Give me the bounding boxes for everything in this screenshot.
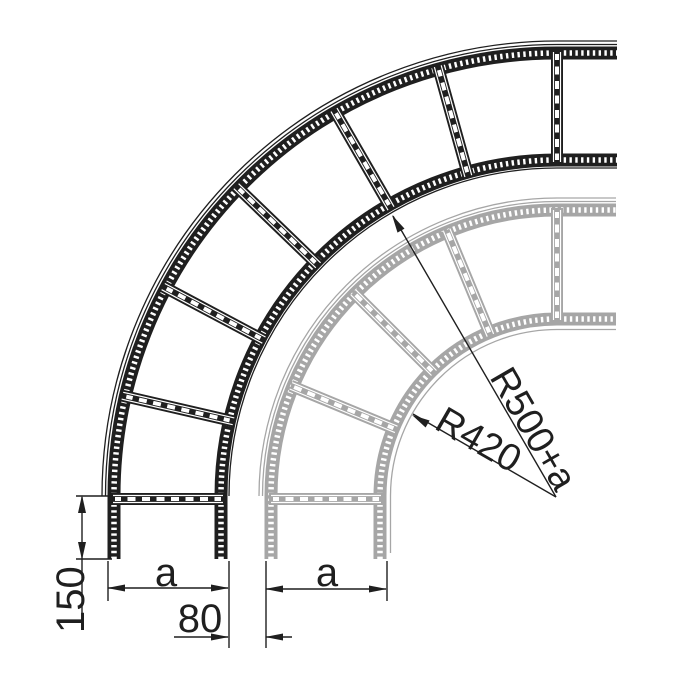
dim-label-80: 80 (178, 597, 223, 641)
black-rung-arc (162, 284, 266, 344)
gray-rung-arc (290, 383, 398, 433)
arrowhead-right (211, 585, 229, 592)
arrowhead-left (107, 585, 125, 592)
dimensions: 150 a 80 a (49, 215, 585, 648)
black-rung-arc (331, 108, 394, 210)
gray-rung-arc (444, 229, 494, 337)
gray-rung-bottom (269, 496, 383, 503)
gray-rung-end (554, 208, 561, 322)
black-rung-end (554, 50, 561, 164)
dim-label-width-black: a (155, 551, 178, 595)
arrowhead-down (78, 542, 86, 560)
arrowhead-left (265, 634, 283, 641)
arrowhead-radius-large (392, 215, 405, 233)
ladder-bend-diagram: 150 a 80 a (0, 0, 691, 683)
dim-label-width-gray: a (316, 551, 339, 595)
black-rung-arc (234, 184, 321, 268)
black-rung-bottom (111, 496, 225, 503)
gray-rung-arc (351, 290, 437, 376)
dimension-150: 150 (49, 495, 112, 633)
arrowhead-radius-small (412, 415, 430, 428)
black-rung-arc (434, 65, 471, 177)
dimension-width-gray: a (265, 551, 387, 601)
black-rung-arc (122, 392, 235, 424)
arrowhead-left (265, 586, 283, 593)
arrowhead-up (78, 495, 86, 513)
drawing-canvas: 150 a 80 a (0, 0, 691, 683)
arrowhead-right (369, 586, 387, 593)
dimension-80: 80 (174, 561, 292, 648)
dim-label-150: 150 (49, 566, 93, 633)
